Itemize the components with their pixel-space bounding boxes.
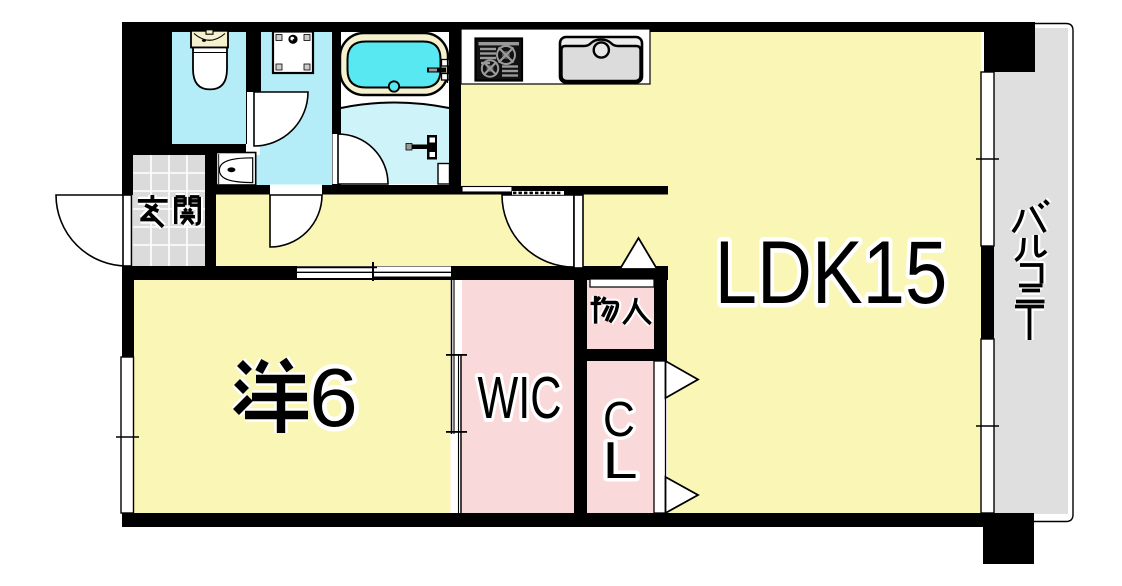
svg-text:6: 6 [309, 352, 358, 444]
svg-text:WIC: WIC [478, 365, 562, 431]
svg-text:LDK15: LDK15 [715, 223, 948, 323]
svg-text:L: L [602, 431, 637, 489]
